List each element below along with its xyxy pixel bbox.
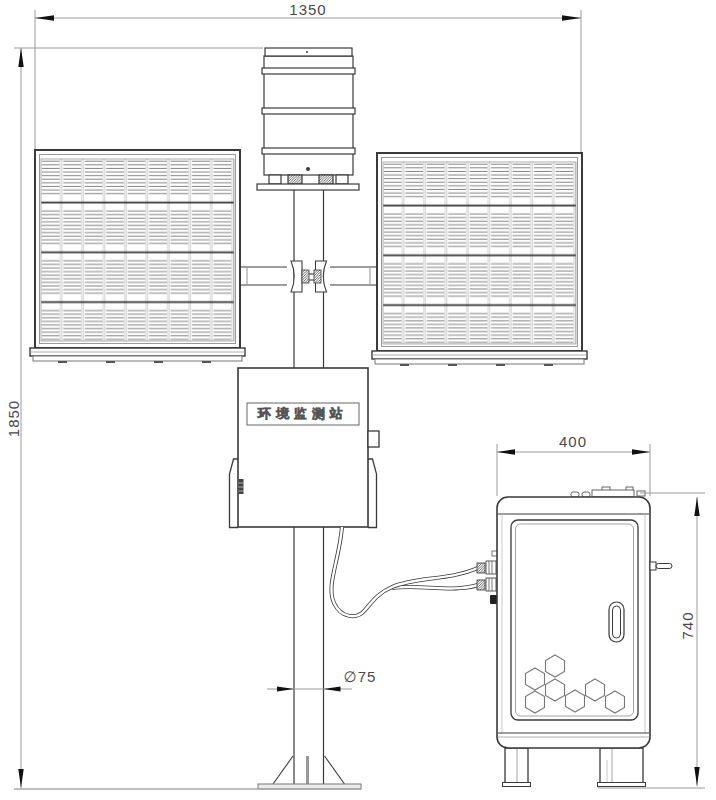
cable-connector-lower (477, 578, 496, 591)
pole-clamp-left (291, 261, 302, 292)
station-enclosure (230, 368, 380, 528)
pole-base (14, 756, 361, 789)
cabinet-top-fittings (571, 487, 645, 497)
panel-mount-clamp (240, 261, 377, 292)
solar-panel-right (372, 153, 587, 366)
enclosure-vent (239, 479, 244, 494)
enclosure-side-knob (368, 431, 379, 447)
clamp-bolt-right (314, 270, 321, 283)
sensor-base-plate (257, 184, 359, 190)
base-plate (258, 784, 361, 789)
weather-sensor-cylinder (257, 48, 359, 190)
cabinet-leg-left (505, 748, 528, 784)
dim-label-pole-diameter: ∅75 (340, 668, 380, 686)
clamp-bolt-left (302, 270, 309, 283)
cabinet-foot-right (598, 783, 646, 787)
dim-label-cabinet-height: 740 (679, 596, 696, 656)
cabinet-door-handle (609, 602, 624, 642)
station-nameplate-label: 环境监测站 (247, 403, 359, 425)
dim-label-cabinet-width: 400 (550, 433, 596, 450)
cabinet-leg-right (600, 748, 643, 784)
base-gusset-right (325, 756, 345, 784)
cabinet-antenna-rod (650, 562, 672, 570)
cabinet-side-knob (490, 595, 497, 604)
cabinet-foot-left (503, 783, 531, 787)
solar-panel-left (30, 150, 245, 363)
dim-label-top-width: 1350 (285, 1, 331, 18)
cable-connector-upper (477, 561, 496, 574)
enclosure-bracket-right (368, 459, 377, 528)
drawing-canvas: 1350 1850 ∅75 400 740 环境监测站 (0, 0, 716, 800)
dim-pole-diameter (267, 686, 352, 691)
dim-label-overall-height: 1850 (5, 389, 22, 449)
base-anchor-stud (306, 756, 309, 784)
signal-cable (331, 527, 498, 616)
enclosure-body (238, 368, 368, 527)
equipment-cabinet (497, 487, 672, 787)
enclosure-bracket-left (230, 459, 239, 528)
base-gusset-left (273, 756, 293, 784)
